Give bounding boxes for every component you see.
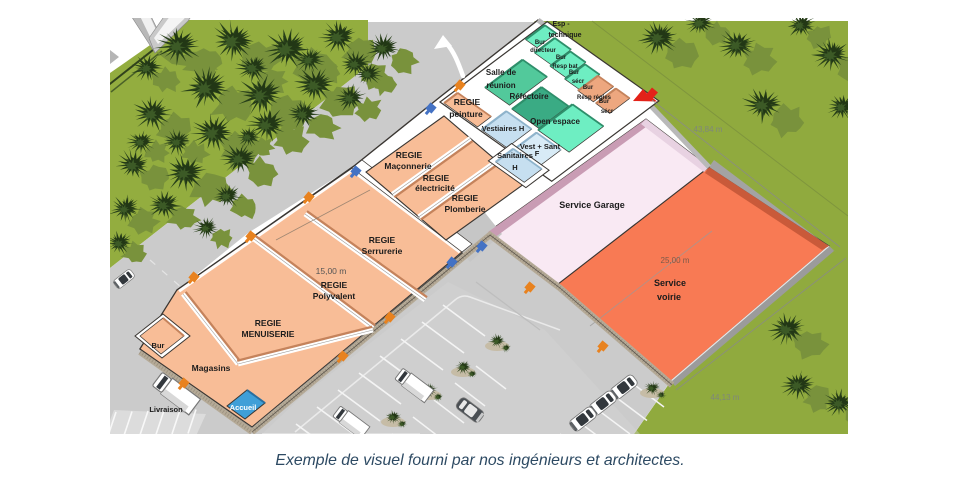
svg-text:peinture: peinture	[449, 109, 483, 119]
svg-text:REGIE: REGIE	[321, 280, 348, 290]
svg-text:Esp -: Esp -	[552, 21, 570, 28]
svg-text:Bur: Bur	[569, 70, 580, 76]
svg-text:Plomberie: Plomberie	[444, 204, 485, 214]
svg-text:MENUISERIE: MENUISERIE	[242, 329, 295, 339]
svg-text:Magasins: Magasins	[192, 363, 231, 373]
svg-text:technique: technique	[548, 32, 581, 39]
svg-text:Bur: Bur	[556, 55, 567, 61]
svg-text:44,13 m: 44,13 m	[711, 393, 740, 402]
svg-text:REGIE: REGIE	[255, 318, 282, 328]
svg-text:Exemple de visuel fourni par n: Exemple de visuel fourni par nos ingénie…	[275, 452, 684, 469]
svg-text:Polyvalent: Polyvalent	[313, 291, 356, 301]
svg-text:REGIE: REGIE	[396, 150, 423, 160]
svg-text:REGIE: REGIE	[423, 173, 450, 183]
svg-text:Salle de: Salle de	[486, 68, 517, 77]
svg-text:sécr: sécr	[601, 109, 614, 115]
svg-text:Serrurerie: Serrurerie	[362, 246, 403, 256]
svg-text:Bur: Bur	[535, 40, 546, 46]
svg-text:Accueil: Accueil	[230, 403, 257, 412]
svg-text:15,00 m: 15,00 m	[316, 266, 347, 276]
svg-text:REGIE: REGIE	[452, 193, 479, 203]
svg-text:Service Garage: Service Garage	[559, 200, 625, 210]
svg-text:Livraison: Livraison	[149, 405, 183, 414]
svg-text:REGIE: REGIE	[454, 97, 481, 107]
svg-text:Réfectoire: Réfectoire	[509, 92, 549, 101]
svg-text:Bur: Bur	[152, 341, 165, 350]
svg-text:Service: Service	[654, 278, 686, 288]
svg-text:Maçonnerie: Maçonnerie	[384, 161, 432, 171]
svg-text:Vest + Sant: Vest + Sant	[520, 142, 561, 151]
svg-text:25,00 m: 25,00 m	[661, 256, 690, 265]
svg-text:Bur: Bur	[599, 99, 610, 105]
svg-text:Vestiaires H: Vestiaires H	[482, 124, 525, 133]
svg-text:réunion: réunion	[486, 81, 515, 90]
svg-text:43,84 m: 43,84 m	[694, 125, 723, 134]
svg-text:voirie: voirie	[657, 292, 681, 302]
svg-text:H: H	[512, 163, 517, 172]
svg-text:Bur: Bur	[583, 85, 594, 91]
svg-text:Sanitaires: Sanitaires	[497, 151, 533, 160]
svg-text:Open espace: Open espace	[530, 117, 580, 126]
svg-text:REGIE: REGIE	[369, 235, 396, 245]
svg-text:électricité: électricité	[415, 183, 455, 193]
svg-text:directeur: directeur	[530, 48, 556, 54]
svg-text:F: F	[535, 149, 540, 158]
